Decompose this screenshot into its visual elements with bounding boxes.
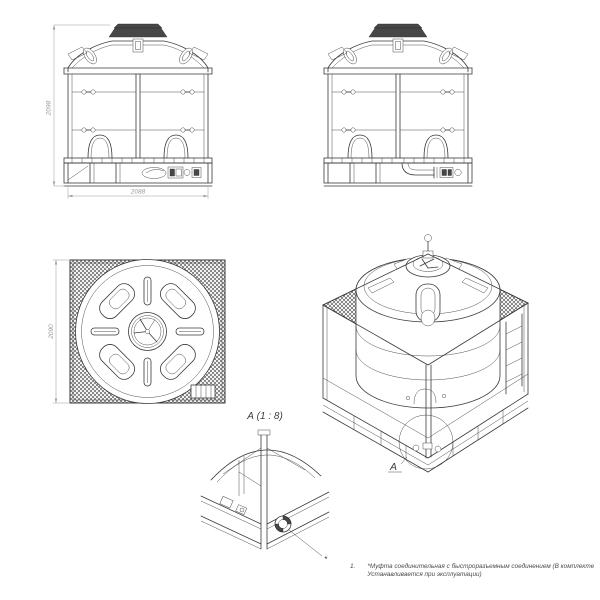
side-view (298, 16, 498, 211)
footnote: 1. *Муфта соединительная с быстроразъемн… (350, 563, 598, 580)
front-width-dimension: 2088 (130, 189, 146, 196)
front-view: 2098 2088 (38, 16, 238, 211)
front-height-dimension: 2098 (46, 100, 53, 116)
detail-callout-label: А (389, 461, 397, 473)
footnote-number: 1. (350, 563, 355, 580)
side-view-drawing (298, 16, 498, 211)
technical-drawing-sheet: 2098 2088 (0, 0, 600, 600)
footnote-text: *Муфта соединительная с быстроразъемным … (367, 563, 594, 580)
detail-view: А (1 : 8) (193, 406, 341, 574)
footnote-line-2: Устанавливается при эксплуатации) (367, 571, 594, 579)
front-view-drawing: 2098 2088 (38, 16, 238, 211)
top-depth-dimension: 2090 (48, 324, 55, 340)
top-view: 2090 (45, 233, 240, 418)
detail-note-marker: * (324, 555, 328, 564)
detail-view-drawing: А (1 : 8) (193, 406, 341, 574)
footnote-line-1: *Муфта соединительная с быстроразъемным … (367, 563, 594, 571)
detail-view-title: А (1 : 8) (246, 411, 283, 422)
top-view-drawing: 2090 (45, 233, 240, 418)
